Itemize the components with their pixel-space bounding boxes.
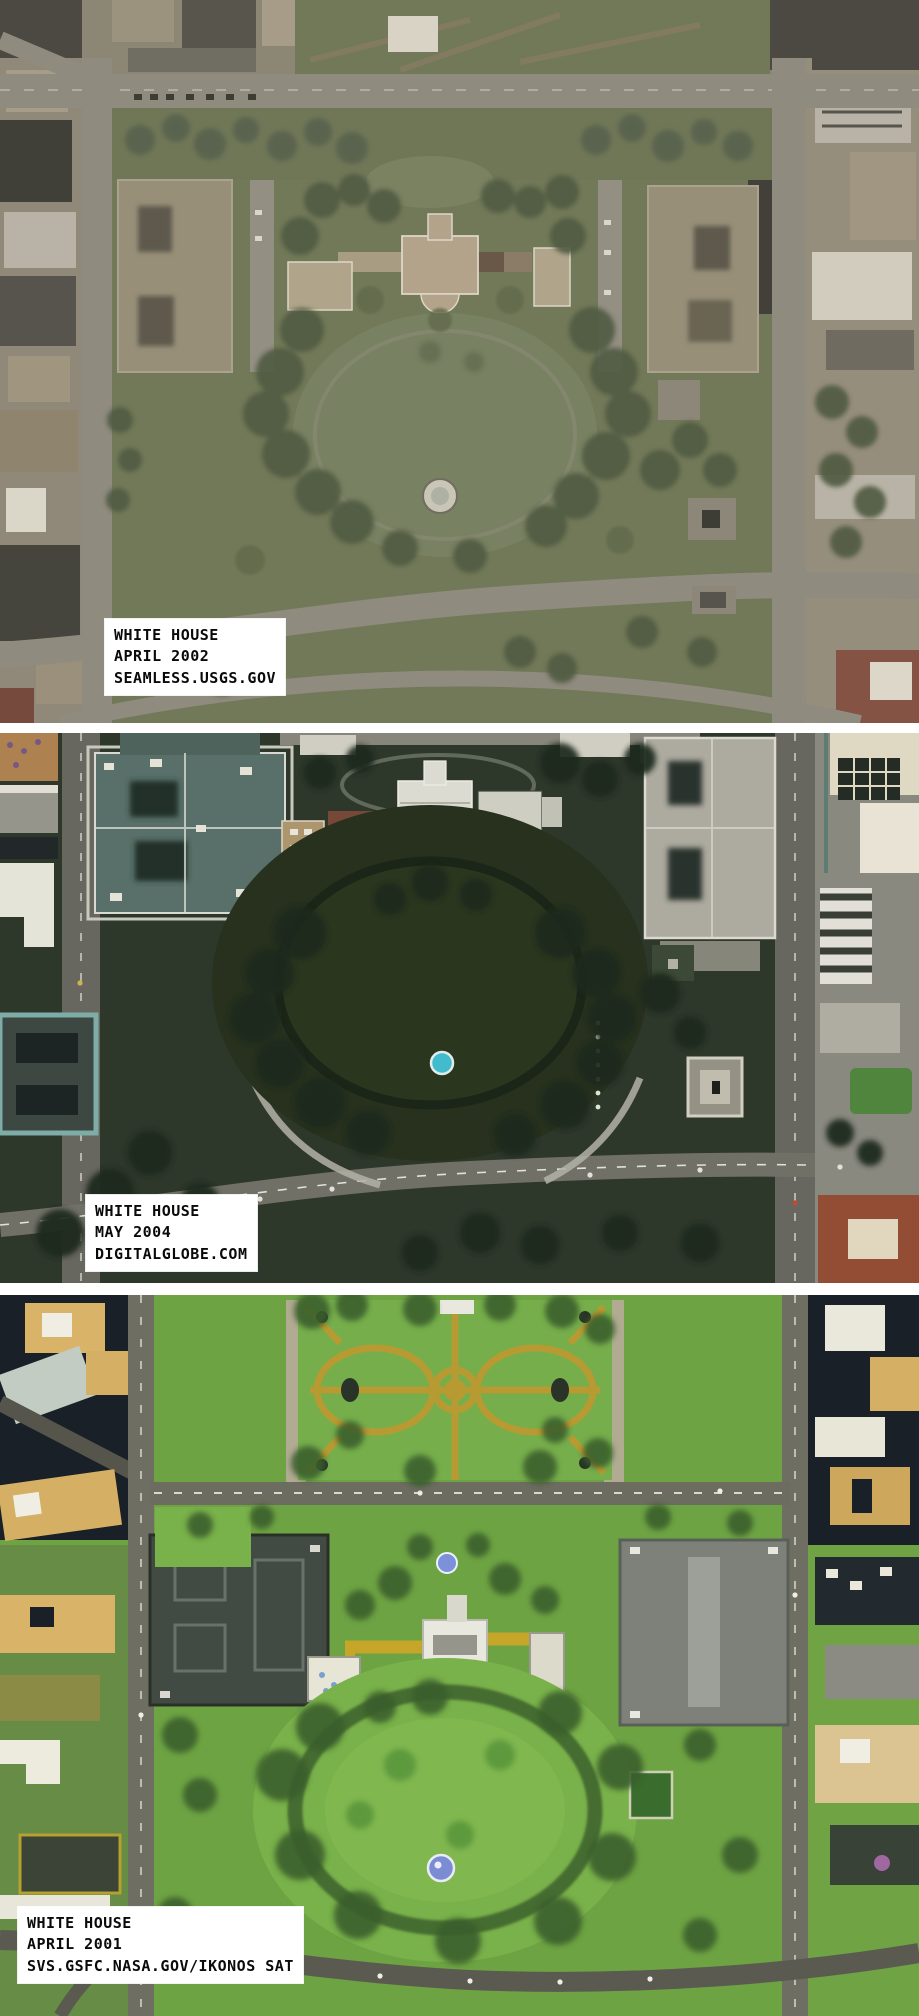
source-label-2002: WHITE HOUSEAPRIL 2002SEAMLESS.USGS.GOV — [105, 619, 285, 695]
city-blocks-east — [815, 733, 919, 1283]
label-line: WHITE HOUSE — [27, 1914, 132, 1932]
satellite-image-2001: WHITE HOUSEAPRIL 2001SVS.GSFC.NASA.GOV/I… — [0, 1295, 919, 2016]
label-line: APRIL 2002 — [114, 647, 209, 665]
label-line: SVS.GSFC.NASA.GOV/IKONOS SAT — [27, 1957, 294, 1975]
south-lawn-fountain — [431, 1052, 453, 1074]
satellite-scene-2002 — [0, 0, 919, 723]
striped-roof-building — [820, 888, 872, 984]
north-lawn-fountain — [437, 1553, 457, 1573]
city-blocks-west — [0, 58, 82, 723]
satellite-comparison-page: WHITE HOUSEAPRIL 2002SEAMLESS.USGS.GOV — [0, 0, 919, 2016]
source-label-2004: WHITE HOUSEMAY 2004DIGITALGLOBE.COM — [86, 1195, 257, 1271]
treasury-building — [645, 738, 775, 981]
label-line: MAY 2004 — [95, 1223, 171, 1241]
south-lawn-fountain — [428, 1855, 454, 1881]
satellite-image-2002: WHITE HOUSEAPRIL 2002SEAMLESS.USGS.GOV — [0, 0, 919, 723]
city-blocks-east — [808, 1295, 919, 2016]
sherman-plaza — [688, 1058, 742, 1116]
label-line: WHITE HOUSE — [95, 1202, 200, 1220]
eeob-building — [118, 180, 232, 372]
teal-roof-complex — [0, 1015, 96, 1133]
treasury-building — [620, 1540, 788, 1725]
source-label-2001: WHITE HOUSEAPRIL 2001SVS.GSFC.NASA.GOV/I… — [18, 1907, 303, 1983]
label-line: APRIL 2001 — [27, 1935, 122, 1953]
label-line: SEAMLESS.USGS.GOV — [114, 669, 276, 687]
label-line: DIGITALGLOBE.COM — [95, 1245, 248, 1263]
satellite-image-2004: WHITE HOUSEMAY 2004DIGITALGLOBE.COM — [0, 733, 919, 1283]
label-line: WHITE HOUSE — [114, 626, 219, 644]
